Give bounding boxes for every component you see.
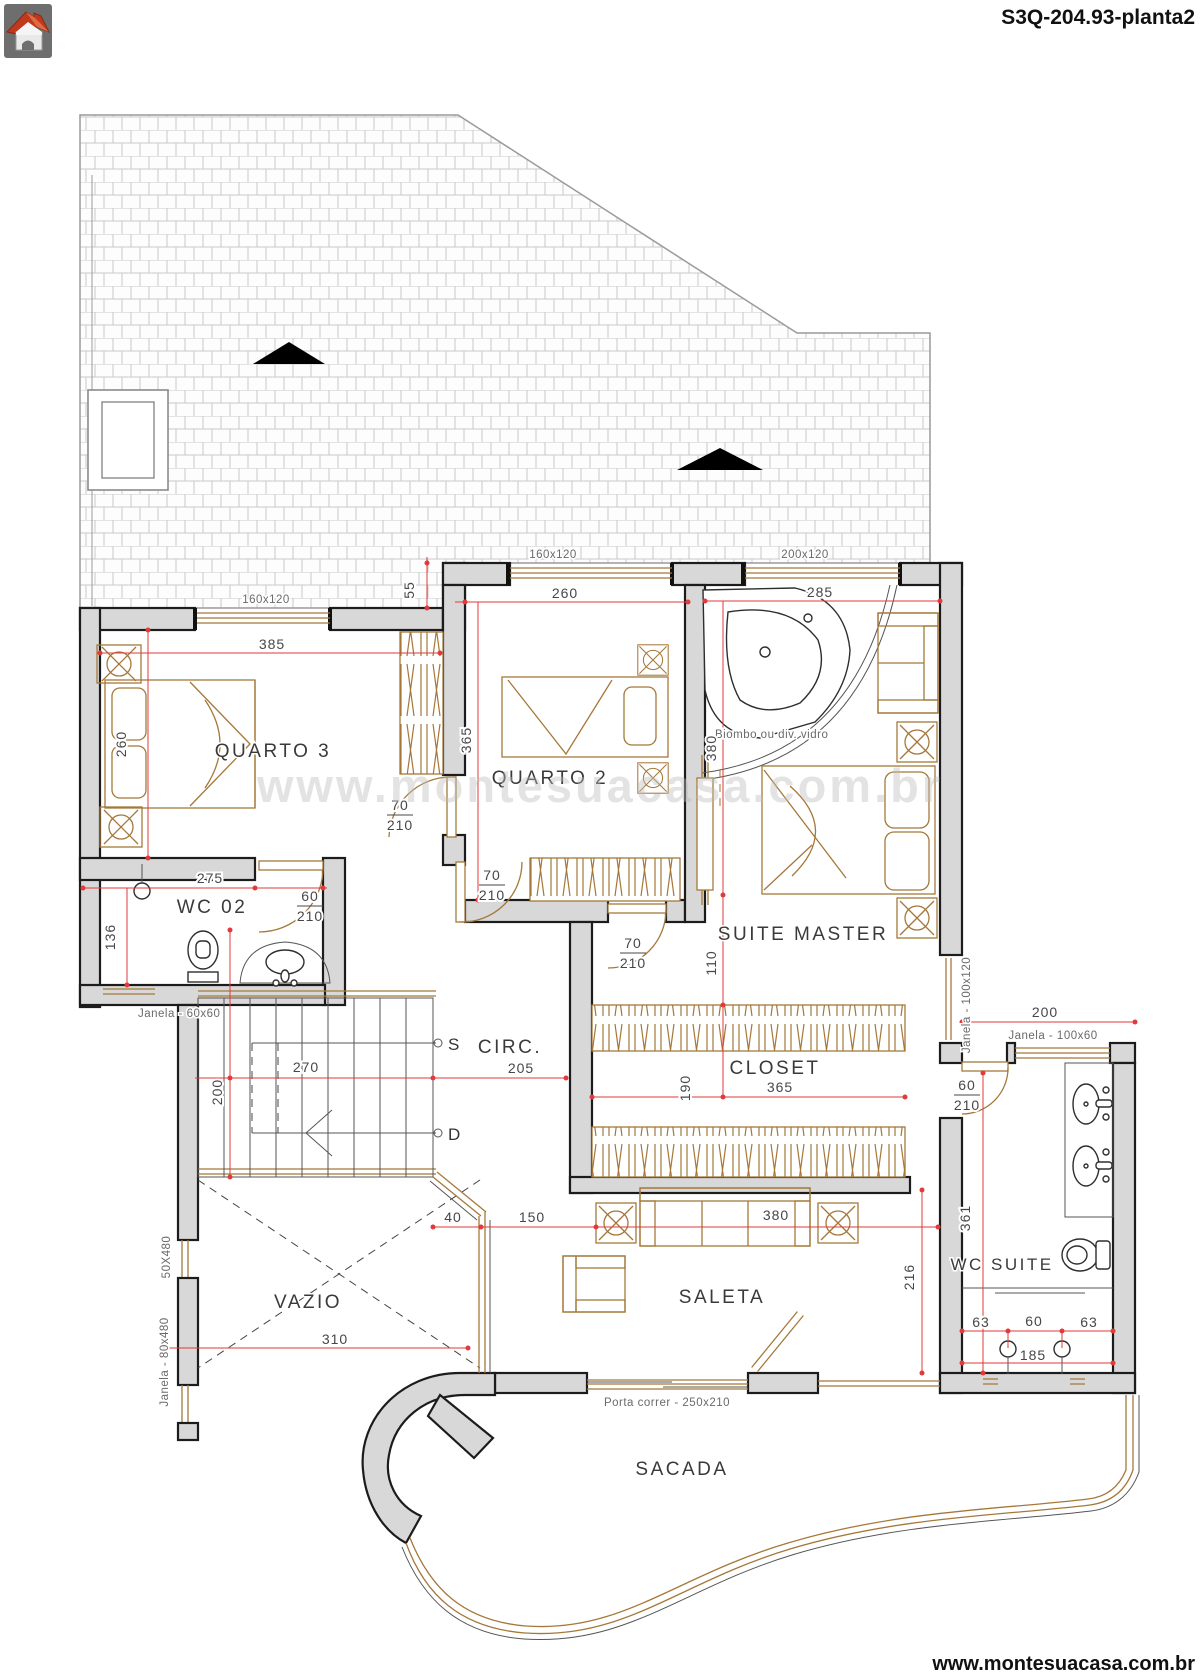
dim: 60: [1025, 1313, 1043, 1329]
nightstand-lamp: [897, 898, 937, 938]
room-label-wc02: WC 02: [177, 897, 248, 918]
door-width: 60: [301, 888, 319, 904]
window-label: Janela - 60x60: [138, 1008, 220, 1020]
dim: 63: [972, 1314, 990, 1330]
dim: 200: [209, 1079, 225, 1105]
room-label-vazio: VAZIO: [274, 1292, 342, 1313]
floor-plan: QUARTO 3 QUARTO 2 SUITE MASTER WC 02 CIR…: [0, 0, 1200, 1680]
window-label: 200x120: [781, 549, 829, 561]
door-height: 210: [297, 908, 323, 924]
window-label: Janela - 100x60: [1008, 1030, 1097, 1042]
dim: 55: [401, 581, 417, 599]
door-height: 210: [479, 887, 505, 903]
room-label-sacada: SACADA: [635, 1459, 728, 1480]
room-label-saleta: SALETA: [679, 1287, 765, 1308]
door-height: 210: [387, 817, 413, 833]
note-biombo: Biombo ou div. vidro: [715, 729, 828, 741]
nightstand-lamp: [97, 645, 141, 683]
door-size-labels: 70 210 70 210 70 210 60 210 60 210: [297, 797, 980, 1113]
dim: 365: [458, 727, 474, 753]
stairs-down-label: D: [448, 1125, 460, 1144]
window-label: 160x120: [242, 594, 290, 606]
dim: 136: [102, 924, 118, 950]
nightstand-lamp: [897, 722, 937, 762]
room-label-closet: CLOSET: [729, 1058, 820, 1079]
sofa-suite: [878, 613, 938, 713]
dim: 310: [322, 1331, 348, 1347]
watermark: www.montesuacasa.com.br: [256, 759, 943, 812]
window-label: 50X480: [161, 1236, 173, 1279]
door-height: 210: [620, 955, 646, 971]
corner-bathtub: [702, 585, 897, 780]
roof: [80, 115, 930, 608]
stairs: [198, 991, 442, 1177]
window-label: Janela - 100x120: [961, 957, 973, 1053]
dim: 200: [1032, 1004, 1058, 1020]
door-width: 70: [624, 935, 642, 951]
room-label-wc-suite: WC SUITE: [950, 1255, 1053, 1274]
dim: 285: [807, 584, 833, 600]
open-door-leaf: [752, 1312, 803, 1371]
dim: 63: [1080, 1314, 1098, 1330]
door-height: 210: [954, 1097, 980, 1113]
window-label: 160x120: [529, 549, 577, 561]
dim: 365: [767, 1079, 793, 1095]
armchair-saleta: [563, 1256, 625, 1312]
walls: [80, 563, 1135, 1543]
side-table-lamp: [596, 1203, 636, 1243]
dim: 150: [519, 1209, 545, 1225]
window-label: Janela - 80x480: [159, 1317, 171, 1406]
nightstand-lamp: [638, 645, 668, 675]
dim: 190: [677, 1075, 693, 1101]
wc02-fixtures: [134, 864, 330, 986]
wardrobe-quarto2: [530, 858, 680, 901]
door-width: 60: [958, 1077, 976, 1093]
dim: 110: [703, 950, 719, 975]
side-table-lamp: [818, 1203, 858, 1243]
closet-wardrobe-top: [592, 1005, 905, 1051]
dim: 260: [552, 585, 578, 601]
note-porta-correr: Porta correr - 250x210: [604, 1397, 730, 1409]
door-width: 70: [483, 867, 501, 883]
nightstand-lamp: [100, 807, 142, 847]
dim: 361: [957, 1205, 973, 1231]
dim: 40: [444, 1209, 462, 1225]
dim: 185: [1020, 1347, 1046, 1363]
dim: 275: [197, 870, 223, 886]
closet-wardrobe-bottom: [592, 1127, 905, 1177]
room-label-circ: CIRC.: [478, 1037, 542, 1058]
dim: 380: [703, 735, 719, 761]
dim: 260: [113, 731, 129, 757]
dim: 216: [901, 1264, 917, 1290]
dim: 380: [763, 1207, 789, 1223]
sacada-railing: [402, 1395, 1139, 1640]
room-label-suite-master: SUITE MASTER: [718, 924, 888, 945]
stairs-up-label: S: [448, 1035, 459, 1054]
dim: 270: [293, 1059, 319, 1075]
bed-quarto2: [502, 677, 668, 757]
dim: 385: [259, 636, 285, 652]
dim: 205: [508, 1060, 534, 1076]
